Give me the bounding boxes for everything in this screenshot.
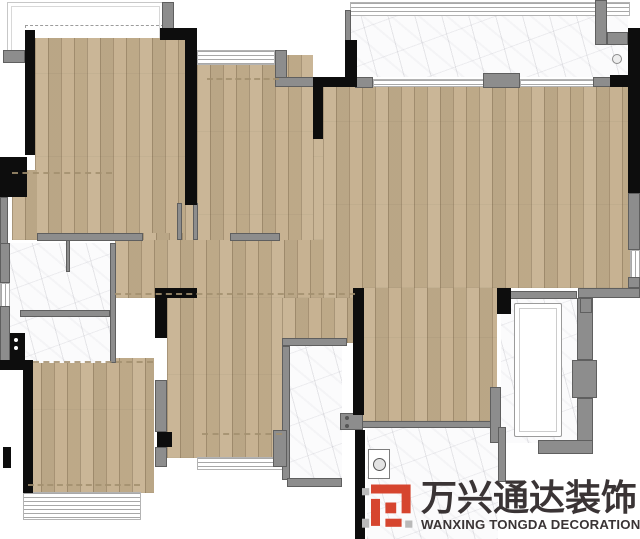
wall-segment-gray (628, 277, 640, 288)
wall-segment-gray (110, 243, 116, 363)
bottom-left-room-floor (28, 358, 154, 493)
floor-drain-icon (612, 54, 622, 64)
wall-segment-gray (498, 427, 506, 482)
wall-segment-black (628, 28, 640, 77)
bedroom-top-left-floor (35, 38, 188, 240)
wall-segment-gray (230, 233, 280, 241)
wall-segment-black (157, 432, 172, 447)
entry-sill (197, 50, 275, 65)
sliding-door-track-right (520, 79, 595, 87)
wall-segment-black (3, 447, 11, 468)
wall-segment-gray (37, 233, 143, 241)
dashed-construction-line (12, 172, 112, 174)
vanity-dots-icon (344, 416, 350, 429)
fixture-dot (345, 416, 349, 420)
fixture-dot (345, 424, 349, 428)
wall-segment-gray (155, 447, 167, 467)
wall-segment-black (23, 360, 33, 493)
floor-plan-canvas: 万兴通达装饰 WANXING TONGDA DECORATION (0, 0, 640, 539)
wall-segment-black (185, 28, 197, 205)
wall-segment-gray (500, 291, 577, 299)
company-logo: 万兴通达装饰 WANXING TONGDA DECORATION (362, 479, 640, 535)
bathroom-middle-floor (287, 343, 342, 480)
sink-dots-icon (13, 338, 21, 354)
wall-segment-black (628, 87, 640, 193)
bathroom-left-window (0, 283, 10, 308)
wall-segment-gray (177, 203, 182, 240)
wall-segment-black (313, 87, 323, 139)
living-room-floor (323, 87, 630, 288)
wall-segment-black (313, 77, 357, 87)
wall-segment-black (25, 30, 35, 155)
wall-segment-gray (0, 306, 10, 363)
dashed-construction-line (207, 78, 279, 80)
bathroom-left-floor (10, 243, 110, 363)
wall-segment-black (345, 40, 357, 80)
wall-segment-black (0, 157, 27, 197)
wall-segment-gray (577, 398, 593, 443)
wall-segment-gray (155, 380, 167, 432)
right-wall-window (630, 250, 640, 279)
wall-segment-black (155, 298, 167, 338)
wall-segment-black (353, 288, 364, 415)
wall-segment-gray (538, 440, 593, 454)
logo-english-name: WANXING TONGDA DECORATION (421, 517, 640, 532)
wall-segment-gray (20, 310, 110, 317)
logo-icon (362, 479, 416, 535)
wall-segment-gray (362, 421, 493, 428)
bathtub (514, 303, 562, 437)
logo-chinese-name: 万兴通达装饰 (421, 479, 640, 517)
wall-segment-gray (607, 32, 628, 45)
hallway-bath-floor (282, 298, 362, 343)
wall-segment-gray (628, 193, 640, 250)
dashed-construction-line (33, 361, 153, 363)
wall-segment-gray (275, 77, 315, 87)
wall-segment-gray (273, 430, 287, 467)
washer-drum-icon (373, 458, 386, 471)
dashed-construction-line (28, 484, 140, 486)
wall-segment-gray (193, 203, 198, 240)
living-room-floor-patch (313, 139, 323, 240)
wall-segment-gray (0, 243, 10, 283)
wall-segment-gray (595, 0, 607, 45)
washing-machine-icon (368, 449, 390, 479)
dashed-construction-line (202, 433, 282, 435)
wall-segment-gray (287, 478, 342, 487)
bottom-left-window (23, 492, 141, 520)
wall-segment-gray (483, 73, 520, 88)
sliding-door-track-left (373, 79, 485, 87)
bedroom-bottom-right-floor (362, 288, 497, 421)
wall-segment-gray (282, 338, 347, 346)
balcony-top-right-floor (350, 8, 628, 77)
wall-segment-gray (355, 77, 373, 88)
wall-segment-gray (66, 240, 70, 272)
wall-segment-gray (3, 50, 25, 63)
wall-segment-black (497, 288, 511, 314)
corridor-floor (115, 240, 362, 298)
wall-segment-gray (580, 298, 592, 313)
wall-segment-gray (578, 288, 640, 298)
balcony-top-rail (350, 2, 630, 16)
fixture-dot (14, 338, 18, 342)
dashed-construction-line (115, 293, 355, 295)
fixture-dot (14, 346, 18, 350)
wall-segment-gray (572, 360, 597, 398)
